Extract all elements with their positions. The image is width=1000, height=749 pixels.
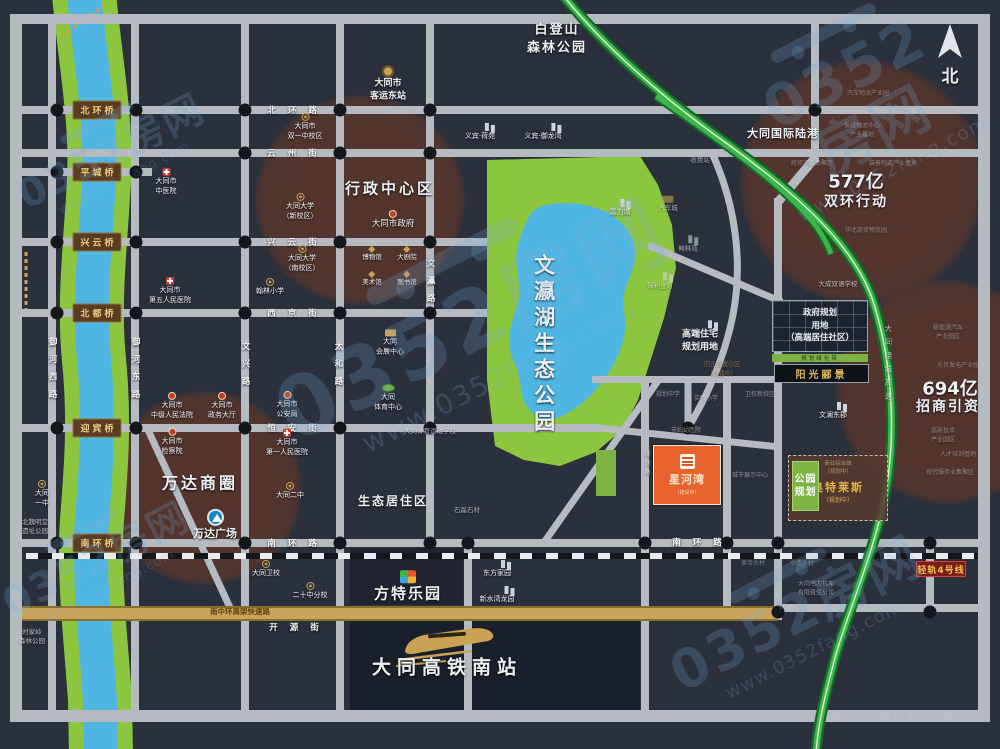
street-name: 文兴路 <box>239 342 251 395</box>
map-label: 大同一中 <box>35 480 49 508</box>
road <box>592 376 784 383</box>
road <box>20 539 980 547</box>
elevated-expressway-road <box>22 606 778 621</box>
map-label: 规划路 <box>642 451 650 478</box>
map-label: 大同市政务大厅 <box>208 392 236 420</box>
school-icon <box>266 278 274 286</box>
map-label: 石磊石材 <box>454 506 480 514</box>
north-compass: 北 <box>928 24 972 87</box>
map-label: 翰林小学 <box>256 278 284 296</box>
intersection-dot <box>334 147 347 160</box>
map-label: 大同市第一人民医院 <box>266 429 308 457</box>
sunshine-box: 阳光郦景 <box>774 364 869 383</box>
street-name: 南环路 <box>672 536 734 548</box>
bridge-plaque: 南环桥 <box>72 534 121 553</box>
bridge-plaque: 平城桥 <box>72 163 121 182</box>
map-label: 大同大学（新校区） <box>283 193 318 221</box>
map-label: 汽车城 <box>658 196 678 212</box>
hospital-icon <box>162 168 170 176</box>
map-label: 577亿 <box>828 170 884 193</box>
street-name: 御河西路 <box>46 337 58 407</box>
bridge-plaque: 迎宾桥 <box>72 419 121 438</box>
school-icon <box>296 193 304 201</box>
map-label: 大同市检察院 <box>162 428 183 456</box>
school-icon <box>298 245 306 253</box>
map-label: 大同体育运动学校 <box>404 427 456 435</box>
museum-icon <box>368 246 375 253</box>
map-label: 市妇幼医院 <box>671 427 701 435</box>
project-seal-icon <box>680 454 695 469</box>
rail-badge: 轻轨4号线 <box>916 561 966 577</box>
map-label: 文瀛湖生态公园 <box>529 254 556 436</box>
gov-plan-box: 政府规划用地（高端居住社区） <box>772 300 868 352</box>
map-label: 图书馆 <box>397 272 417 286</box>
building-icon <box>485 123 489 131</box>
disclaimer-text: 本区位示意图仅供参考，最终以政府规划为准 <box>830 712 970 721</box>
hospital-icon <box>283 429 291 437</box>
map-label: 义宾·荷苑 <box>465 123 495 141</box>
map-label: 高端住宅规划用地 <box>682 320 718 353</box>
map-label: 新能源汽车产业园区 <box>933 325 963 342</box>
building-icon <box>505 586 509 594</box>
map-label: 二十中分校 <box>293 582 328 600</box>
building-icon <box>621 199 625 207</box>
map-label: 光伏发电产业园 <box>937 362 979 370</box>
bridge-plaque: 兴云桥 <box>72 233 121 252</box>
map-label: 装备制造产业基地 <box>869 160 917 168</box>
building-icon <box>688 235 692 243</box>
school-icon <box>262 560 270 568</box>
park-plan-box: 公园规划 <box>792 461 819 511</box>
gov-icon <box>283 391 291 399</box>
map-label: 大同大学（南校区） <box>285 245 320 273</box>
map-label: 保利金町 <box>647 272 673 289</box>
road <box>10 14 22 722</box>
wanda-icon <box>207 509 224 526</box>
map-label: 大同国际陆港 <box>747 127 819 141</box>
map-label: 大同绕城高速 <box>883 325 893 406</box>
street-name: 御河东路 <box>129 337 141 407</box>
intersection-dot <box>924 606 937 619</box>
gov-icon <box>168 392 176 400</box>
road <box>777 604 980 612</box>
map-label: 收费站 <box>690 156 710 164</box>
map-label: 美术馆 <box>362 272 382 286</box>
map-label: 实验小学 <box>694 395 718 403</box>
map-label: 行政中心区 <box>345 179 435 199</box>
map-label: 方特乐园 <box>374 570 442 604</box>
intersection-dot <box>809 104 822 117</box>
intersection-dot <box>51 166 64 179</box>
building-icon <box>501 560 505 568</box>
map-label: 汽车物流产业园 <box>847 90 889 98</box>
map-label: 泉寺头村 <box>741 560 765 568</box>
map-label: 经贸产业集聚区 <box>791 160 833 168</box>
map-label: 大同体育中心 <box>374 384 402 412</box>
location-map: 北 本区位示意图仅供参考，最终以政府规划为准 北环桥平城桥兴云桥北都桥迎宾桥南环… <box>0 0 1000 749</box>
stadium-icon <box>382 384 395 392</box>
school-icon <box>306 582 314 590</box>
intersection-dot <box>772 606 785 619</box>
intersection-dot <box>334 422 347 435</box>
intersection-dot <box>239 422 252 435</box>
map-label: 双环行动 <box>824 193 888 211</box>
museum-icon <box>368 271 375 278</box>
map-label: 卫校新校区 <box>745 391 775 399</box>
map-label: 大同会展中心 <box>376 329 404 356</box>
road <box>20 149 980 157</box>
intersection-dot <box>51 422 64 435</box>
expo-icon <box>385 329 396 336</box>
hospital-icon <box>166 277 174 285</box>
gov-icon <box>389 210 397 218</box>
map-label: 博物馆 <box>362 247 382 261</box>
intersection-dot <box>462 537 475 550</box>
park-strip <box>596 450 616 496</box>
intersection-dot <box>924 537 937 550</box>
intersection-dot <box>424 147 437 160</box>
map-label: 大同二中 <box>276 482 304 500</box>
street-name: 文瀛路 <box>424 259 436 312</box>
map-label: 大同市第五人民医院 <box>149 277 191 305</box>
intersection-dot <box>130 104 143 117</box>
map-label: 新水湾龙园 <box>480 586 515 604</box>
map-label: 大同电力机车有限责任公司 <box>798 581 834 598</box>
intersection-dot <box>51 537 64 550</box>
bridge-plaque: 北环桥 <box>72 101 121 120</box>
map-label: 大同市中医院 <box>156 168 177 196</box>
intersection-dot <box>51 104 64 117</box>
bus-icon <box>382 65 394 77</box>
gov-icon <box>168 428 176 436</box>
building-icon <box>552 123 556 131</box>
map-label: 大同高铁南站 <box>372 656 522 681</box>
intersection-dot <box>239 104 252 117</box>
map-label: 大同市双一中校区 <box>288 113 323 141</box>
building-icon <box>708 320 712 328</box>
map-label: 东方家园 <box>483 560 511 578</box>
map-label: 人才培训基地 <box>940 451 976 459</box>
map-label: 义宾·御龙湾 <box>524 123 561 141</box>
map-label: 大同市政府 <box>372 210 415 230</box>
intersection-dot <box>130 236 143 249</box>
map-label: 招商引资 <box>916 398 980 416</box>
bridge-plaque: 北都桥 <box>72 304 121 323</box>
map-label: 大同市客运东站 <box>370 65 406 102</box>
north-arrow-icon <box>936 24 964 60</box>
map-label: 万达商圈 <box>162 474 238 495</box>
building-icon <box>663 272 667 280</box>
road <box>723 376 731 612</box>
map-label: 大同市公安局 <box>277 391 298 419</box>
road <box>20 106 980 114</box>
road <box>978 14 990 722</box>
museum-icon <box>403 271 410 278</box>
street-name: 云州街 <box>267 147 329 159</box>
expo-icon <box>663 196 674 203</box>
street-name: 开源街 <box>269 621 331 633</box>
intersection-dot <box>51 307 64 320</box>
wenying-lake <box>509 203 635 419</box>
map-label: 现代服务业集聚区 <box>926 469 974 477</box>
road <box>10 14 990 24</box>
street-name: 西京街 <box>267 307 329 319</box>
map-label: 北魏明堂遗址公园 <box>22 518 48 536</box>
school-icon <box>38 480 46 488</box>
intersection-dot <box>51 236 64 249</box>
intersection-dot <box>130 166 143 179</box>
intersection-dot <box>424 537 437 550</box>
map-label: 保税物流中心产业基地 <box>844 123 880 140</box>
map-label: 大成双语学校 <box>819 280 858 288</box>
green-belt: 规划绿化带 <box>772 354 868 362</box>
museum-icon <box>403 246 410 253</box>
map-label: 华北商贸物流园 <box>845 227 887 235</box>
intersection-dot <box>239 537 252 550</box>
street-name: 南环路 <box>267 537 329 549</box>
intersection-dot <box>424 236 437 249</box>
map-label: 白登山森林公园 <box>527 23 587 58</box>
intersection-dot <box>130 422 143 435</box>
north-label: 北 <box>928 62 972 87</box>
map-label: 大同市中级人民法院 <box>151 392 193 420</box>
map-label: 南中环高架快速路 <box>210 607 270 617</box>
gov-icon <box>218 392 226 400</box>
map-label: 城市展示中心 <box>732 472 768 480</box>
map-label: 万达广场 <box>193 509 237 541</box>
map-label: 回迁安置小区（在建中） <box>704 362 740 379</box>
intersection-dot <box>239 236 252 249</box>
fangte-icon <box>400 570 416 583</box>
building-icon <box>837 402 841 410</box>
intersection-dot <box>239 147 252 160</box>
intersection-dot <box>130 537 143 550</box>
school-icon <box>301 113 309 121</box>
intersection-dot <box>239 307 252 320</box>
intersection-dot <box>639 537 652 550</box>
intersection-dot <box>772 537 785 550</box>
school-icon <box>286 482 294 490</box>
intersection-dot <box>130 307 143 320</box>
intersection-dot <box>424 104 437 117</box>
project-box: 星河湾（建设中） <box>653 445 721 505</box>
intersection-dot <box>334 236 347 249</box>
street-name: 太和路 <box>332 342 344 395</box>
map-label: 小南头村 <box>790 560 814 568</box>
map-label: 高新技术产业园区 <box>931 428 955 445</box>
map-label: 翰林苑 <box>678 235 698 252</box>
road <box>464 539 472 712</box>
map-label: 规划中学 <box>656 391 680 399</box>
intersection-dot <box>334 537 347 550</box>
map-label: 时家岭森林公园 <box>19 628 45 646</box>
intersection-dot <box>334 307 347 320</box>
intersection-dot <box>334 104 347 117</box>
map-label: 大同卫校 <box>252 560 280 578</box>
map-label: 大剧院 <box>397 247 417 261</box>
map-label: 富力城 <box>610 199 631 217</box>
map-label: 文澜东郡 <box>819 402 847 420</box>
map-label: 生态居住区 <box>358 494 428 510</box>
light-rail-line <box>26 553 978 559</box>
